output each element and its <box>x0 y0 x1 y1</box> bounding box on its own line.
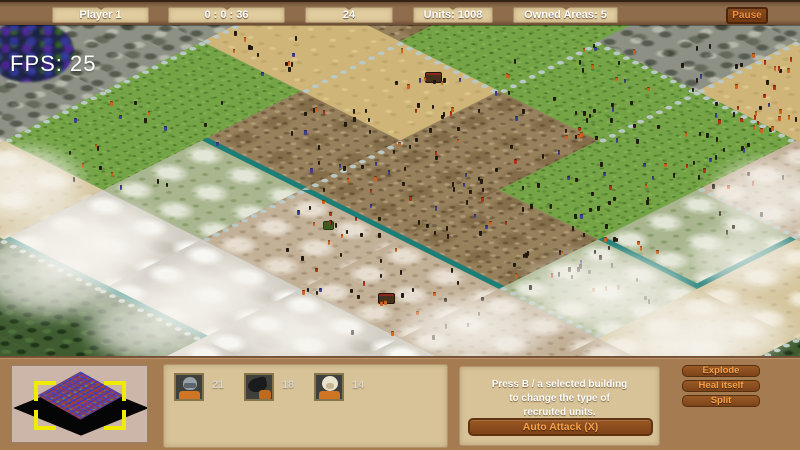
map-unit <box>604 237 607 242</box>
map-unit <box>481 197 484 202</box>
explode-button[interactable]: Explode <box>682 365 760 377</box>
map-unit <box>618 61 620 65</box>
unit-count: 21 <box>212 379 224 391</box>
map-unit <box>361 165 364 169</box>
map-unit <box>459 78 461 82</box>
top-bar-item-owned-areas[interactable]: Owned Areas: 5 <box>513 7 618 23</box>
cloud <box>680 221 800 296</box>
map-unit <box>441 115 444 119</box>
unit-portrait-turban-soldier[interactable] <box>314 373 344 401</box>
map-unit <box>474 214 476 218</box>
map-unit <box>699 132 701 136</box>
map-unit <box>514 159 517 164</box>
map-unit <box>613 197 616 201</box>
map-unit <box>591 64 594 69</box>
map-unit <box>315 107 317 112</box>
unit-groups-panel: 211814 <box>163 364 448 448</box>
map-unit <box>706 133 709 138</box>
map-unit <box>774 66 776 71</box>
map-unit <box>715 113 717 118</box>
map-unit <box>378 217 381 221</box>
map-unit <box>400 270 402 275</box>
map-unit <box>522 207 524 212</box>
map-unit <box>624 79 626 83</box>
map-unit <box>542 154 544 159</box>
map-unit <box>329 220 331 225</box>
portrait-face-shape <box>326 383 334 389</box>
map-unit <box>664 163 667 167</box>
map-unit <box>388 170 390 175</box>
map-unit <box>647 197 649 201</box>
map-unit <box>735 84 738 89</box>
map-unit <box>737 106 739 110</box>
bracket-corner-tr <box>104 381 126 401</box>
map-unit <box>234 31 237 36</box>
map-unit <box>709 158 712 162</box>
map-unit <box>353 109 355 114</box>
map-unit <box>315 268 318 272</box>
map-unit <box>313 108 315 113</box>
unit-count: 18 <box>282 379 294 391</box>
unit-count: 14 <box>352 379 364 391</box>
map-unit <box>479 231 482 236</box>
map-unit <box>111 172 113 177</box>
map-unit <box>771 126 774 131</box>
top-bar-item-player[interactable]: Player 1 <box>52 7 149 23</box>
map-unit <box>432 105 434 109</box>
map-unit <box>426 224 429 228</box>
map-unit <box>288 67 291 72</box>
map-unit <box>747 143 750 147</box>
map-unit <box>735 64 738 69</box>
map-unit <box>578 127 581 131</box>
map-unit <box>485 225 488 229</box>
map-unit <box>457 281 459 285</box>
map-unit <box>309 206 311 210</box>
map-unit <box>353 117 356 122</box>
map-unit <box>753 125 755 130</box>
heal-button[interactable]: Heal itself <box>682 380 760 392</box>
map-unit <box>715 155 717 160</box>
top-bar-item-counter[interactable]: 24 <box>305 7 393 23</box>
map-unit <box>611 103 614 107</box>
map-unit <box>380 274 382 278</box>
map-unit <box>580 214 583 219</box>
map-unit <box>429 128 432 133</box>
map-unit <box>292 53 295 57</box>
map-unit <box>579 60 581 65</box>
map-unit <box>583 111 586 116</box>
map-unit <box>375 162 377 166</box>
map-unit <box>304 112 307 116</box>
map-unit <box>788 115 790 120</box>
pause-button[interactable]: Pause <box>726 7 768 24</box>
map-unit <box>600 162 603 167</box>
map-unit <box>322 200 325 204</box>
map-unit <box>465 173 467 177</box>
map-unit <box>778 116 781 121</box>
map-unit <box>407 84 410 89</box>
map-unit <box>323 110 325 115</box>
map-unit <box>148 111 150 116</box>
map-unit <box>368 118 370 122</box>
map-unit <box>766 80 769 85</box>
map-unit <box>144 118 147 123</box>
map-unit <box>630 101 633 105</box>
map-unit <box>110 101 113 106</box>
map-unit <box>301 256 304 261</box>
map-unit <box>616 238 618 242</box>
map-unit <box>740 63 743 67</box>
map-unit <box>612 107 614 112</box>
map-unit <box>575 135 577 139</box>
map-unit <box>515 116 518 121</box>
map-unit <box>164 126 167 131</box>
map-unit <box>643 163 646 167</box>
map-unit <box>696 78 698 83</box>
map-unit <box>763 94 766 98</box>
map-unit <box>795 117 797 122</box>
map-unit <box>605 224 608 229</box>
map-unit <box>740 118 743 122</box>
map-unit <box>580 132 583 137</box>
map-unit <box>681 63 684 68</box>
unit-portrait-dark-archer[interactable] <box>244 373 274 401</box>
portrait-visor-shape <box>184 383 196 388</box>
map-unit <box>451 107 454 112</box>
map-unit <box>595 136 598 140</box>
map-unit <box>558 150 560 155</box>
map-unit <box>597 206 600 211</box>
map-unit <box>304 130 307 135</box>
bracket-corner-br <box>104 410 126 430</box>
map-unit <box>451 268 453 273</box>
map-unit <box>522 109 525 114</box>
map-unit <box>134 101 137 105</box>
map-unit <box>764 60 766 65</box>
map-unit <box>609 185 612 190</box>
map-unit <box>715 102 718 106</box>
map-unit <box>380 301 383 306</box>
map-unit <box>686 164 688 168</box>
map-unit <box>550 204 552 209</box>
instruction-text: Press B / a selected building to change … <box>460 378 659 420</box>
map-unit <box>525 253 528 258</box>
map-unit <box>637 241 640 245</box>
map-unit <box>495 91 497 96</box>
map-unit <box>583 48 585 52</box>
map-unit <box>402 182 405 186</box>
bracket-corner-bl <box>34 410 56 430</box>
map-unit <box>615 77 618 81</box>
map-unit <box>412 288 414 292</box>
map-unit <box>419 78 421 83</box>
map-unit <box>593 109 596 113</box>
map-unit <box>513 263 516 267</box>
map-unit <box>495 168 498 172</box>
map-unit <box>698 175 700 180</box>
map-unit <box>343 166 346 171</box>
map-unit <box>435 206 437 211</box>
bottom-panel: 211814 Press B / a selected building to … <box>0 356 800 450</box>
map-unit <box>760 128 763 133</box>
map-unit <box>401 293 404 298</box>
map-unit <box>779 109 782 114</box>
map-unit <box>693 161 695 165</box>
map-unit <box>204 123 207 127</box>
map-unit <box>482 188 484 192</box>
map-unit <box>346 230 348 234</box>
map-unit <box>384 300 387 305</box>
portrait-body-shape <box>179 391 200 400</box>
map-unit <box>363 281 365 286</box>
map-unit <box>685 132 687 137</box>
portrait-body2-shape <box>259 390 271 400</box>
map-unit <box>357 295 360 299</box>
map-unit <box>318 161 320 165</box>
game-window: FPS: 25 Player 10 : 0 : 3624Units: 1008O… <box>0 0 800 450</box>
map-unit <box>257 53 259 57</box>
map-unit <box>360 233 363 237</box>
map-unit <box>244 37 246 42</box>
unit-portrait-masked-soldier[interactable] <box>174 373 204 401</box>
map-unit <box>350 289 353 293</box>
map-unit <box>553 97 556 101</box>
map-unit <box>759 106 762 110</box>
map-unit <box>297 210 300 215</box>
map-unit <box>302 290 305 295</box>
map-unit <box>508 74 510 79</box>
map-unit <box>216 142 219 146</box>
map-unit <box>295 36 297 41</box>
map-unit <box>452 182 454 187</box>
map-unit <box>572 226 574 231</box>
instruction-line: to change the type of <box>460 392 659 406</box>
map-unit <box>435 156 438 160</box>
map-unit <box>374 176 377 181</box>
bracket-corner-tl <box>34 381 56 401</box>
map-unit <box>718 119 721 124</box>
map-unit <box>787 68 790 73</box>
instruction-line: Press B / a selected building <box>460 378 659 392</box>
map-unit <box>319 288 322 292</box>
map-unit <box>378 233 381 238</box>
map-unit <box>537 183 540 188</box>
map-unit <box>757 121 759 125</box>
map-unit <box>589 114 591 118</box>
map-unit <box>119 115 122 119</box>
map-unit <box>409 145 411 149</box>
portrait-body-shape <box>319 391 340 400</box>
map-unit <box>424 77 426 81</box>
cloud <box>140 252 280 332</box>
map-unit <box>329 212 332 216</box>
map-unit <box>370 204 372 208</box>
map-unit <box>594 47 597 51</box>
info-panel: Press B / a selected building to change … <box>459 366 660 446</box>
map-unit <box>567 176 570 180</box>
map-unit <box>647 87 650 91</box>
map-unit <box>250 46 253 50</box>
map-unit <box>505 221 507 225</box>
map-unit <box>409 196 412 201</box>
map-unit <box>316 291 318 295</box>
minimap[interactable] <box>11 365 148 443</box>
map-unit <box>480 179 483 184</box>
map-unit <box>610 118 613 123</box>
map-unit <box>433 80 436 84</box>
map-unit <box>435 151 437 156</box>
map-unit <box>733 112 735 117</box>
map-unit <box>575 178 578 182</box>
map-unit <box>616 138 618 143</box>
map-unit <box>530 204 533 209</box>
top-bar: Player 10 : 0 : 3624Units: 1008Owned Are… <box>0 0 800 25</box>
map-unit <box>261 72 264 76</box>
minimap-viewport-brackets <box>34 381 126 430</box>
map-unit <box>457 139 459 143</box>
top-bar-item-units[interactable]: Units: 1008 <box>413 7 493 23</box>
map-unit <box>74 118 77 123</box>
map-unit <box>589 208 592 212</box>
map-unit <box>463 183 465 187</box>
map-unit <box>286 248 289 252</box>
map-unit <box>393 150 395 154</box>
map-unit <box>434 231 436 235</box>
fps-counter: FPS: 25 <box>10 51 96 77</box>
auto-attack-button[interactable]: Auto Attack (X) <box>468 418 653 436</box>
map-unit <box>716 137 718 142</box>
map-unit <box>508 91 510 95</box>
map-unit <box>489 221 492 225</box>
map-unit <box>401 48 403 53</box>
map-unit <box>608 201 611 205</box>
map-unit <box>755 111 757 116</box>
map-unit <box>633 49 635 54</box>
map-unit <box>339 164 341 168</box>
map-unit <box>453 187 455 192</box>
map-unit <box>752 53 755 58</box>
map-unit <box>514 59 516 64</box>
map-unit <box>307 288 309 292</box>
map-unit <box>457 127 460 131</box>
map-unit <box>447 234 449 239</box>
split-button[interactable]: Split <box>682 395 760 407</box>
map-unit <box>313 222 315 226</box>
map-unit <box>645 184 647 188</box>
map-unit <box>347 178 349 183</box>
top-bar-item-time[interactable]: 0 : 0 : 36 <box>168 7 285 23</box>
map-unit <box>709 44 711 49</box>
map-unit <box>97 146 99 151</box>
map-unit <box>404 167 406 171</box>
map-unit <box>754 115 756 120</box>
map-unit <box>636 139 639 144</box>
map-unit <box>310 168 313 173</box>
map-unit <box>603 172 606 176</box>
map-unit <box>417 103 420 108</box>
map-unit <box>365 109 367 113</box>
